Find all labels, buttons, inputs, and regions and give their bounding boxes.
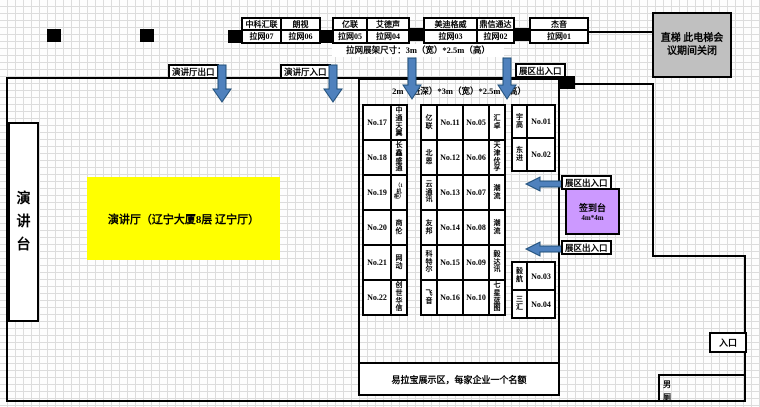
booth-number: No.09	[464, 246, 488, 279]
vendor-slot: 拉网01	[531, 31, 587, 42]
down-arrow-icon	[497, 57, 517, 101]
stage-label: 演讲台	[16, 188, 31, 257]
booth-number: No.17	[364, 106, 390, 139]
booth-number: No.05	[464, 106, 488, 139]
vendor-name: 亿联	[334, 19, 366, 29]
booth-company: 潮流	[490, 176, 504, 209]
booth-number: No.20	[364, 211, 390, 244]
entrance-label: 入口	[709, 332, 747, 353]
booth-company: 友邦	[422, 211, 436, 244]
booth-number: No.21	[364, 246, 390, 279]
pullup-banner-zone-note: 易拉宝展示区，每家企业一个名额	[358, 362, 560, 396]
booth-number: No.07	[464, 176, 488, 209]
signin-desk: 签到台 4m*4m	[565, 188, 620, 235]
booth-number: No.04	[528, 291, 554, 317]
banner-size-note: 拉网展架尺寸：3m（宽）*2.5m（高）	[332, 44, 504, 57]
booth-group-left: No.17 中通天翼 No.18 长鑫盛通 No.19 （1机柜） No.20 …	[362, 104, 408, 316]
booth-number: No.18	[364, 141, 390, 174]
booth-company: 天津优孚	[490, 141, 504, 174]
booth-number: No.22	[364, 281, 390, 314]
booth-number: No.08	[464, 211, 488, 244]
banner-stand-table-3: 美迪格威 鼎信通达 拉网03 拉网02	[423, 17, 515, 44]
wall-bottom	[6, 400, 746, 402]
booth-number: No.16	[438, 281, 462, 314]
booth-number: No.02	[528, 139, 554, 170]
wall-step	[652, 255, 746, 257]
booth-number: No.14	[438, 211, 462, 244]
vendor-slot: 拉网03	[425, 31, 476, 42]
booth-company: 商伦	[392, 211, 406, 244]
pillar	[515, 28, 529, 41]
booth-number: No.19	[364, 176, 390, 209]
pillar	[47, 29, 61, 42]
wall-top-right	[564, 83, 654, 85]
booth-number: No.13	[438, 176, 462, 209]
banner-stand-table-1: 中科汇联 朗视 拉网07 拉网06	[241, 17, 321, 44]
banner-stand-table-2: 亿联 艾德声 拉网05 拉网04	[332, 17, 410, 44]
booth-size-note: 2m（进深）*3m（宽）*2.5m（高）	[365, 85, 553, 97]
booth-group-right-top: 宇高 No.01 东进 No.02	[511, 104, 556, 172]
stage-podium: 演讲台	[8, 122, 39, 322]
elevator-note-box: 直梯 此电梯会议期间关闭	[652, 12, 732, 78]
vendor-name: 鼎信通达	[478, 19, 513, 29]
exhibit-gate-label-right-2: 展区出入口	[561, 240, 612, 255]
booth-company: （1机柜）	[392, 176, 406, 209]
lecture-hall-label-box: 演讲厅（辽宁大厦8层 辽宁厅）	[87, 177, 280, 260]
booth-group-right-bottom: 毅航 No.03 三汇 No.04	[511, 261, 556, 319]
signin-desk-label: 签到台	[579, 201, 606, 214]
booth-company: 创世华信	[392, 281, 406, 314]
booth-company: 中通天翼	[392, 106, 406, 139]
down-arrow-icon	[402, 57, 422, 101]
booth-company: 潮流	[490, 211, 504, 244]
banner-stand-table-4: 杰音 拉网01	[529, 17, 589, 44]
signin-desk-size: 4m*4m	[581, 214, 603, 222]
vendor-slot: 拉网05	[334, 31, 366, 42]
mens-restroom-label: 男厕	[663, 378, 672, 404]
pillar	[410, 28, 424, 41]
vendor-name: 艾德声	[368, 19, 408, 29]
booth-company: 网动	[392, 246, 406, 279]
booth-company: 汇卓	[490, 106, 504, 139]
pillar	[319, 30, 333, 43]
vendor-name: 美迪格威	[425, 19, 476, 29]
booth-company: 云通讯	[422, 176, 436, 209]
booth-company: 飞音	[422, 281, 436, 314]
vendor-slot: 拉网07	[243, 31, 280, 42]
vendor-slot: 拉网06	[282, 31, 319, 42]
booth-number: No.10	[464, 281, 488, 314]
booth-number: No.01	[528, 106, 554, 137]
pillar	[140, 29, 154, 42]
vendor-name: 中科汇联	[243, 19, 280, 29]
booth-company: 科特尔	[422, 246, 436, 279]
booth-company: 三汇	[513, 291, 526, 317]
down-arrow-icon	[323, 64, 343, 104]
booth-number: No.12	[438, 141, 462, 174]
booth-number: No.06	[464, 141, 488, 174]
booth-company: 长鑫盛通	[392, 141, 406, 174]
booth-company: 宇高	[513, 106, 526, 137]
booth-number: No.03	[528, 263, 554, 289]
mens-restroom: 男厕	[658, 374, 746, 402]
wall-right-upper	[652, 83, 654, 257]
connector-line	[588, 31, 654, 33]
vendor-slot: 拉网04	[368, 31, 408, 42]
lecture-exit-label: 演讲厅出口	[168, 64, 219, 79]
vendor-name: 杰音	[531, 19, 587, 29]
booth-number: No.11	[438, 106, 462, 139]
pillar	[228, 30, 242, 43]
booth-company: 毅达讯	[490, 246, 504, 279]
vendor-slot: 拉网02	[478, 31, 513, 42]
vendor-name: 朗视	[282, 19, 319, 29]
booth-company: 北恩	[422, 141, 436, 174]
booth-company: 亿联	[422, 106, 436, 139]
down-arrow-icon	[212, 64, 232, 104]
booth-company: 毅航	[513, 263, 526, 289]
booth-company: 东进	[513, 139, 526, 170]
booth-number: No.15	[438, 246, 462, 279]
booth-group-middle: 亿联 No.11 No.05 汇卓 北恩 No.12 No.06 天津优孚 云通…	[420, 104, 506, 316]
exhibit-gate-label-top: 展区出入口	[515, 63, 566, 78]
booth-company: 七星蓝图	[490, 281, 504, 314]
